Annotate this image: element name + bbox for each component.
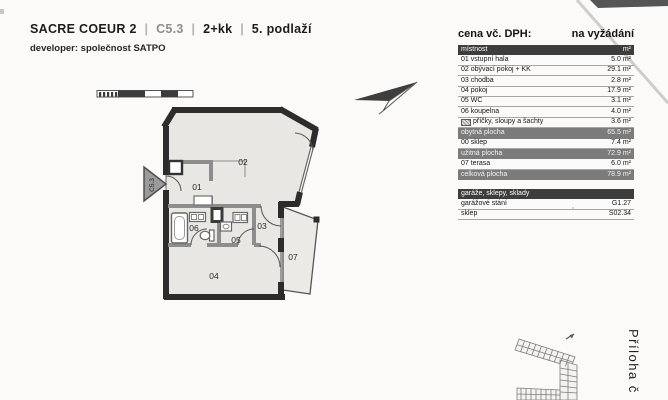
title-line: SACRE COEUR 2 | C5.3 | 2+kk | 5. podlaží: [30, 22, 312, 36]
row-value: 5.0 m²: [611, 55, 631, 66]
row-label: 00 sklep: [461, 138, 487, 149]
row-value: 4.0 m²: [611, 107, 631, 118]
hatch-swatch-icon: [461, 119, 471, 126]
key-plan-arrow-icon: [566, 334, 574, 339]
price-value: na vyžádání: [572, 28, 634, 40]
room-label-05: 05: [231, 235, 241, 245]
washbasin-icon: [221, 222, 232, 231]
row-value: 29.1 m²: [607, 65, 631, 76]
attachment-label: Příloha č: [626, 329, 641, 394]
table-section-gap: [458, 180, 634, 189]
row-label: garážové stání: [461, 199, 507, 210]
unit-entrance-marker: C5.3: [144, 167, 166, 201]
room-label-01: 01: [192, 182, 202, 192]
separator: |: [187, 22, 199, 36]
row-label: 05 WC: [461, 96, 482, 107]
row-label: 04 pokoj: [461, 86, 487, 97]
price-label: cena vč. DPH:: [458, 28, 531, 40]
row-label: 03 chodba: [461, 76, 494, 87]
unit-code: C5.3: [156, 22, 184, 36]
table-row: 04 pokoj 17.9 m²: [458, 87, 634, 97]
row-value: 7.4 m²: [611, 138, 631, 149]
room-label-06: 06: [189, 223, 199, 233]
row-label: 06 koupelna: [461, 107, 499, 118]
row-label: příčky, sloupy a šachty: [473, 117, 543, 128]
developer-line: developer: společnost SATPO: [30, 43, 312, 54]
room-label-02: 02: [238, 157, 248, 167]
table-row: 00 sklep 7.4 m²: [458, 139, 634, 149]
row-label: celková plocha: [461, 170, 507, 181]
sheet-header: SACRE COEUR 2 | C5.3 | 2+kk | 5. podlaží…: [30, 22, 312, 54]
separator: |: [140, 22, 152, 36]
table-row: 07 terasa 6.0 m²: [458, 159, 634, 169]
table-row-partitions: příčky, sloupy a šachty 3.6 m²: [458, 118, 634, 128]
row-value: G1.27: [612, 199, 631, 210]
table-row-cellar: sklep S02.34: [458, 210, 634, 220]
row-label: 07 terasa: [461, 159, 490, 170]
area-table: místnost m² 01 vstupní hala 5.0 m² 02 ob…: [458, 45, 634, 220]
row-value: 2.8 m²: [611, 76, 631, 87]
row-value: 6.0 m²: [611, 159, 631, 170]
room-label-03: 03: [257, 221, 267, 231]
shaft-box: [169, 161, 182, 174]
row-value: 3.6 m²: [611, 117, 631, 128]
scan-corner-streak: [590, 0, 668, 8]
row-value: 17.9 m²: [607, 86, 631, 97]
table-row-garage: garážové stání G1.27: [458, 199, 634, 209]
row-value: 78.9 m²: [607, 170, 631, 181]
row-value: S02.34: [609, 209, 631, 220]
summary-row-total-area: celková plocha 78.9 m²: [458, 170, 634, 180]
north-arrow-icon: [354, 82, 417, 114]
price-line: cena vč. DPH: na vyžádání: [458, 28, 634, 40]
scale-bar: [97, 91, 193, 98]
scan-edge-mark: [0, 9, 4, 14]
room-label-04: 04: [209, 271, 219, 281]
disposition: 2+kk: [203, 22, 232, 36]
plumbing-shaft-core: [214, 210, 221, 220]
row-value: 3.1 m²: [611, 96, 631, 107]
terrace-corner-wall: [314, 217, 320, 223]
bathtub-icon: [172, 213, 188, 243]
building-key-plan: [515, 334, 577, 400]
row-label: 01 vstupní hala: [461, 55, 508, 66]
separator: |: [236, 22, 248, 36]
unit-marker-label: C5.3: [149, 178, 156, 192]
toilet-icon: [200, 231, 210, 239]
floor-label: 5. podlaží: [252, 22, 312, 36]
room-label-07: 07: [288, 252, 298, 262]
hall-cabinet: [194, 196, 212, 205]
terrace: [283, 207, 320, 294]
row-label: sklep: [461, 209, 477, 220]
project-name: SACRE COEUR 2: [30, 22, 137, 36]
scanned-floorplan-page: { "header": { "project": "SACRE COEUR 2"…: [0, 0, 668, 400]
row-label: 02 obývací pokoj + KK: [461, 65, 531, 76]
